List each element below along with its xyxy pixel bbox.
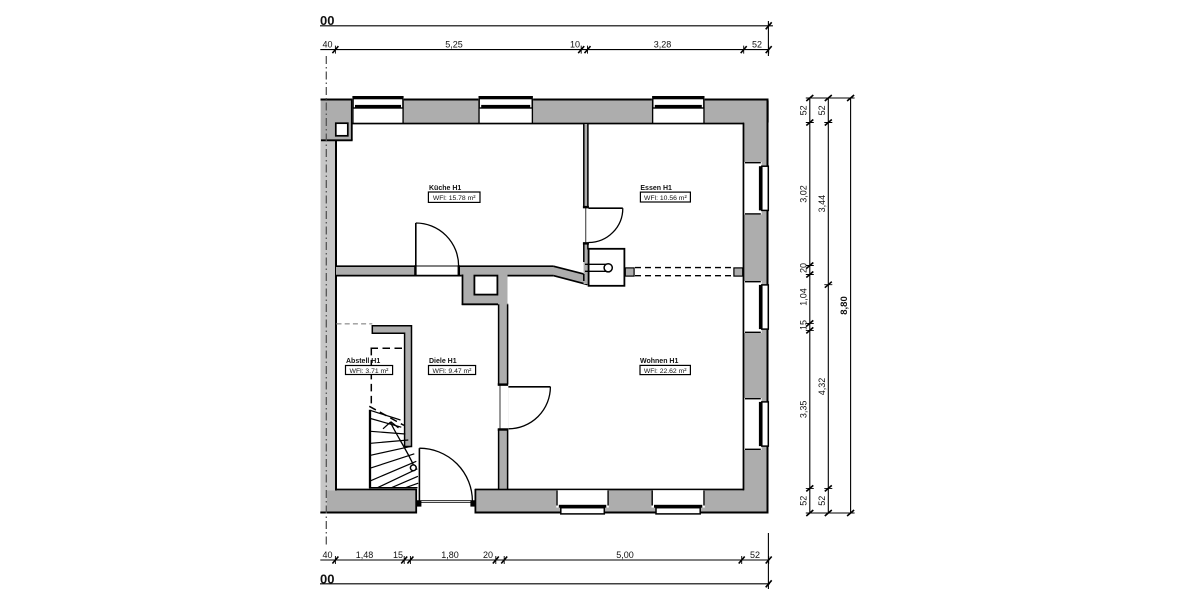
svg-text:Küche H1: Küche H1 [429, 185, 461, 192]
svg-text:Wohnen H1: Wohnen H1 [640, 358, 678, 365]
svg-text:5,00: 5,00 [616, 550, 634, 560]
svg-text:3,44: 3,44 [817, 195, 827, 213]
svg-text:52: 52 [752, 40, 762, 50]
svg-text:20: 20 [799, 263, 809, 273]
svg-text:4,32: 4,32 [817, 378, 827, 396]
svg-text:52: 52 [817, 496, 827, 506]
svg-text:WFl: 10.56 m²: WFl: 10.56 m² [644, 195, 687, 202]
svg-text:40: 40 [322, 40, 332, 50]
svg-text:WFl: 3.71 m²: WFl: 3.71 m² [350, 368, 390, 375]
svg-text:8,80: 8,80 [839, 296, 850, 315]
svg-text:5,25: 5,25 [445, 40, 463, 50]
svg-text:Abstell H1: Abstell H1 [346, 358, 380, 365]
svg-text:3,35: 3,35 [799, 401, 809, 419]
svg-text:52: 52 [799, 496, 809, 506]
svg-text:WFl: 22.62 m²: WFl: 22.62 m² [644, 368, 687, 375]
svg-text:20: 20 [483, 550, 493, 560]
svg-text:WFl: 15.78 m²: WFl: 15.78 m² [433, 195, 476, 202]
svg-text:52: 52 [799, 105, 809, 115]
svg-text:10: 10 [570, 40, 580, 50]
svg-text:40: 40 [322, 550, 332, 560]
svg-text:52: 52 [750, 550, 760, 560]
svg-text:1,48: 1,48 [356, 550, 374, 560]
svg-text:3,28: 3,28 [654, 40, 672, 50]
svg-text:Essen H1: Essen H1 [640, 185, 672, 192]
svg-text:15: 15 [799, 320, 809, 330]
svg-text:1,80: 1,80 [441, 550, 459, 560]
svg-text:Diele H1: Diele H1 [429, 358, 457, 365]
svg-text:1,04: 1,04 [799, 288, 809, 306]
svg-text:52: 52 [817, 105, 827, 115]
svg-text:WFl: 9.47 m²: WFl: 9.47 m² [433, 368, 473, 375]
svg-text:15: 15 [393, 550, 403, 560]
svg-text:3,02: 3,02 [799, 185, 809, 203]
